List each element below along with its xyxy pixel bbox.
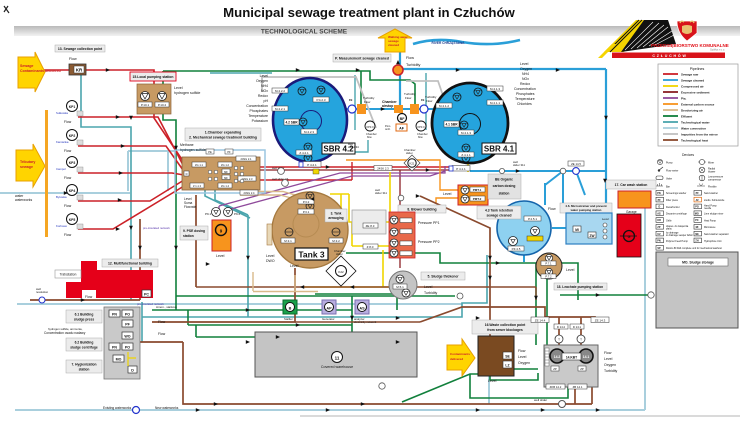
svg-text:MF: MF [224,176,228,180]
svg-text:Oxygen: Oxygen [256,79,268,83]
svg-text:K21: K21 [410,162,415,166]
svg-text:8. Blower building: 8. Blower building [407,208,436,212]
svg-text:pH: pH [264,99,269,103]
svg-text:ZB 14.1: ZB 14.1 [573,385,583,389]
svg-text:Potassium: Potassium [252,119,268,123]
svg-text:Water connection: Water connection [681,127,706,131]
svg-text:PC: PC [144,293,149,297]
svg-text:Lime sludge mixer: Lime sludge mixer [704,213,724,216]
svg-text:Z.4.2.1: Z.4.2.1 [299,151,309,155]
svg-text:AG: AG [657,212,661,215]
svg-text:station: station [499,192,510,196]
svg-text:PO: PO [125,346,130,350]
svg-text:sewage: sewage [20,165,33,169]
svg-text:M.5.1: M.5.1 [396,285,404,289]
svg-text:sludge press: sludge press [74,318,95,322]
svg-text:KP3.0: KP3.0 [366,125,374,129]
svg-text:carbon dosing: carbon dosing [493,184,516,188]
svg-text:Flow: Flow [158,332,166,336]
svg-text:electricity network: electricity network [354,320,377,324]
svg-text:flow: flow [418,135,423,139]
svg-text:M.4.2.1: M.4.2.1 [275,107,285,111]
svg-text:4.1 SBR: 4.1 SBR [445,123,458,127]
svg-text:Concentration osadu nadawy: Concentration osadu nadawy [44,331,86,335]
svg-text:slider: slider [406,151,413,155]
svg-text:sludge centrifuge: sludge centrifuge [70,346,98,350]
svg-text:TECHNOLOGICAL SCHEME: TECHNOLOGICAL SCHEME [261,29,348,36]
svg-text:compressor: compressor [708,179,721,182]
svg-text:ZE 8.3: ZE 8.3 [366,224,375,228]
svg-text:ZE 14.5: ZE 14.5 [571,162,581,166]
svg-text:P 4.2.1: P 4.2.1 [307,163,317,167]
svg-text:Screenings washer: Screenings washer [666,192,687,195]
svg-text:11: 11 [335,356,340,361]
svg-text:Level: Level [174,86,183,90]
svg-text:Level: Level [424,285,433,289]
svg-text:4.2 SBR: 4.2 SBR [285,121,298,125]
svg-text:Microsieve: Microsieve [704,226,716,229]
svg-text:ZH: ZH [695,240,698,243]
svg-text:sewage cleaned: sewage cleaned [486,214,511,218]
svg-text:Contaminants: Contaminants [450,352,470,356]
svg-text:PF: PF [696,192,700,195]
svg-text:T: T [580,338,582,342]
svg-text:ZP: ZP [657,226,660,229]
svg-text:pre-insulated network: pre-insulated network [137,302,164,306]
svg-text:aerauging: aerauging [328,216,343,220]
svg-text:P.3.2: P.3.2 [303,200,310,204]
svg-text:Level: Level [266,254,275,258]
svg-text:M.3.1: M.3.1 [284,239,292,243]
svg-text:KP2: KP2 [69,134,76,138]
svg-text:Level: Level [216,254,225,258]
svg-text:P9.1: P9.1 [205,212,212,216]
svg-text:NE: NE [695,233,699,236]
svg-text:KP3.0: KP3.0 [417,125,425,129]
svg-text:15.Local pumping station: 15.Local pumping station [133,75,174,79]
svg-text:Chlorides: Chlorides [517,102,532,106]
svg-text:AF: AF [696,199,700,202]
svg-text:Stallter: Stallter [284,317,293,321]
svg-text:Devices: Devices [682,153,694,157]
svg-text:ZP: ZP [580,367,584,371]
svg-text:Level: Level [520,62,529,66]
svg-text:Kamianka: Kamianka [56,140,69,144]
svg-text:K22: K22 [338,270,344,274]
svg-text:Turbidity: Turbidity [406,63,421,67]
svg-text:Filter press: Filter press [666,199,679,202]
svg-text:Flow: Flow [406,56,414,60]
svg-text:Sand washer: Sand washer [704,192,718,195]
svg-text:D: D [659,206,661,209]
svg-text:Decarburizer: Decarburizer [666,206,680,209]
svg-text:Pump: Pump [666,162,673,165]
svg-text:M.4.2.3: M.4.2.3 [304,130,314,134]
svg-text:AS: AS [359,307,365,311]
svg-text:Flowrate: Flowrate [184,205,196,209]
svg-text:P.10.1: P.10.1 [141,103,150,107]
svg-text:well slider: well slider [534,398,547,402]
svg-text:G: G [628,235,631,239]
svg-text:Technological heat: Technological heat [681,139,708,143]
svg-text:slider 311: slider 311 [375,191,387,195]
svg-text:station: station [183,234,194,238]
svg-text:Compressed air: Compressed air [681,85,705,89]
svg-text:AF: AF [399,127,405,131]
svg-text:Sewage cleaned: Sewage cleaned [681,79,704,83]
svg-text:Effluent: Effluent [681,115,692,119]
svg-text:M.4.1.3: M.4.1.3 [461,131,471,135]
svg-text:ZG 1.4: ZG 1.4 [221,184,229,188]
svg-text:Oxygen: Oxygen [520,67,532,71]
svg-text:MO: MO [116,358,122,362]
svg-text:New waterworks: New waterworks [155,406,179,410]
svg-text:P. Measurement sewage cleaned: P. Measurement sewage cleaned [335,57,389,61]
svg-text:Concentration: Concentration [514,87,536,91]
svg-text:KR: KR [657,219,661,222]
svg-text:airstop: airstop [382,104,393,108]
svg-text:Level: Level [260,74,269,78]
svg-text:MI: MI [696,226,699,229]
svg-text:Z.4.1.1: Z.4.1.1 [461,153,471,157]
svg-text:Municipal sewage treatment pla: Municipal sewage treatment plant in Człu… [223,5,515,20]
svg-text:KP4: KP4 [69,189,76,193]
svg-text:Covered warehouse: Covered warehouse [321,365,353,369]
svg-text:Oxygen: Oxygen [518,361,530,365]
svg-text:17. Car wash station: 17. Car wash station [615,183,648,187]
svg-text:AP: AP [326,307,332,311]
svg-text:B: B [289,307,292,311]
svg-text:P.7.1: P.7.1 [545,262,552,266]
svg-text:2. Mechanical sewage treatment: 2. Mechanical sewage treatment building [189,136,257,140]
svg-text:Turbidity: Turbidity [604,369,618,373]
svg-text:Bar: Bar [666,186,670,189]
svg-text:MO. Sludge storage: MO. Sludge storage [682,261,714,265]
svg-text:M.4.1.1: M.4.1.1 [490,101,500,105]
svg-text:PMT.2: PMT.2 [473,197,482,201]
svg-text:Level: Level [604,357,613,361]
svg-text:PF: PF [658,199,662,202]
svg-text:delivered: delivered [450,357,463,361]
svg-text:Valve: Valve [666,178,673,181]
svg-text:resolution: resolution [36,290,49,294]
svg-text:LZ: LZ [505,364,509,368]
svg-text:NOx: NOx [261,89,268,93]
svg-text:Flow: Flow [69,57,77,61]
svg-text:slider 311: slider 311 [513,163,525,167]
svg-text:P.7.2: P.7.2 [545,275,552,279]
svg-text:Level: Level [290,264,299,268]
svg-text:Grille: Grille [666,219,672,222]
svg-text:Temperature: Temperature [515,97,535,101]
svg-text:Sulkowka: Sulkowka [56,111,68,115]
svg-text:Oxygen: Oxygen [604,363,616,367]
svg-text:NOx: NOx [522,77,529,81]
svg-text:CZŁUCHÓW: CZŁUCHÓW [652,53,687,58]
svg-text:blower: blower [708,171,716,174]
svg-text:6.1 Building: 6.1 Building [75,313,94,317]
svg-text:Flow: Flow [158,320,166,324]
svg-text:FE: FE [349,98,353,102]
svg-text:Level: Level [518,355,527,359]
svg-text:ZE 14.4: ZE 14.4 [535,319,546,323]
svg-text:Existing waterworks: Existing waterworks [103,406,132,410]
svg-text:Trafostation: Trafostation [60,273,77,277]
svg-text:Decanter centrifuge: Decanter centrifuge [666,213,688,216]
svg-text:DWO: DWO [266,259,275,263]
svg-text:UZ: UZ [657,233,661,236]
svg-text:Spółka z o.o.: Spółka z o.o. [710,48,725,52]
svg-text:waterworks: waterworks [15,198,32,202]
svg-text:PMT.1: PMT.1 [473,188,482,192]
svg-text:Heat Pump: Heat Pump [704,219,717,222]
svg-text:Flow: Flow [364,100,371,104]
svg-text:PN: PN [112,346,117,350]
svg-text:Level: Level [488,379,497,383]
svg-text:to drainage sewper fabric: to drainage sewper fabric [666,234,694,237]
svg-text:KP5: KP5 [69,218,76,222]
svg-text:Flow: Flow [64,233,72,237]
svg-text:4.3 Tank retention: 4.3 Tank retention [485,209,513,213]
svg-text:Flow meter: Flow meter [666,170,679,173]
svg-text:hydrogen sulfide: hydrogen sulfide [174,91,200,95]
svg-text:PN: PN [112,313,117,317]
svg-text:station: station [79,368,90,372]
svg-text:16.Waste collection point: 16.Waste collection point [485,323,526,327]
svg-text:Sand washer separator: Sand washer separator [704,233,729,236]
svg-text:WO: WO [124,335,130,339]
svg-text:MF: MF [224,170,228,174]
svg-text:M.4.1.3: M.4.1.3 [490,87,500,91]
svg-text:7. Hygienization: 7. Hygienization [71,363,96,367]
svg-text:MI: MI [575,228,579,232]
svg-text:Bytowka: Bytowka [56,195,67,199]
svg-text:NH4: NH4 [522,72,529,76]
svg-text:ZKB 14.2: ZKB 14.2 [550,385,562,389]
svg-text:BF: BF [400,117,406,121]
svg-text:Level: Level [443,192,452,196]
svg-text:ZE 14.3: ZE 14.3 [595,319,606,323]
svg-text:Redox: Redox [520,82,530,86]
svg-text:Sewage raw: Sewage raw [681,73,699,77]
svg-text:Flow: Flow [604,351,612,355]
svg-text:Temperature: Temperature [248,114,268,118]
svg-text:ZG 1.2: ZG 1.2 [221,163,229,167]
svg-text:3. Tank: 3. Tank [331,212,342,216]
svg-text:ZP: ZP [553,367,557,371]
svg-text:pre-insulated network: pre-insulated network [143,226,170,230]
svg-text:Flow: Flow [64,204,72,208]
svg-text:D: D [186,172,188,176]
svg-text:slider-34: slider-34 [348,145,359,149]
svg-text:Level: Level [566,268,575,272]
svg-text:needle: needle [704,207,712,210]
svg-text:D: D [131,369,134,373]
svg-text:P9.2: P9.2 [234,212,241,216]
svg-text:D 14.2: D 14.2 [557,325,566,329]
svg-text:24SG 2.1: 24SG 2.1 [241,157,253,161]
svg-text:hydrogen sulfide: hydrogen sulfide [180,148,206,152]
svg-text:13. Sewage collection point: 13. Sewage collection point [58,47,103,51]
svg-text:P.4.5.1: P.4.5.1 [528,217,537,221]
svg-text:14.2: 14.2 [554,355,561,359]
svg-text:NH4: NH4 [261,84,268,88]
svg-text:Methane: Methane [180,143,194,147]
svg-text:Excessive sediment: Excessive sediment [681,91,710,95]
svg-text:6.2 Building: 6.2 Building [75,341,94,345]
svg-text:SBR 4.1: SBR 4.1 [484,145,515,154]
svg-text:P 4.1.1: P 4.1.1 [456,167,466,171]
svg-text:Phosphates: Phosphates [250,109,269,113]
svg-text:from sewer blockages: from sewer blockages [487,328,523,332]
svg-text:Pia.: Pia. [681,97,687,101]
svg-text:M.3.2: M.3.2 [332,239,340,243]
svg-text:BE Organic: BE Organic [495,178,513,182]
svg-text:Sewage: Sewage [20,64,33,68]
svg-text:P.10.2: P.10.2 [158,103,167,107]
svg-text:Flow: Flow [548,207,556,211]
svg-text:Tributary: Tributary [20,160,35,164]
svg-text:ZG 1.1: ZG 1.1 [195,163,203,167]
svg-text:SE: SE [505,355,510,359]
svg-text:PN: PN [657,240,661,243]
svg-text:Flexible: Flexible [708,186,717,189]
svg-text:PC: PC [695,219,699,222]
svg-text:ZW: ZW [590,234,595,238]
svg-text:5. Sludge thickener: 5. Sludge thickener [427,275,459,279]
svg-text:Generator: Generator [322,317,335,321]
svg-text:14.1: 14.1 [583,355,590,359]
svg-text:Technological water: Technological water [681,121,710,125]
svg-text:PO: PO [695,206,699,209]
svg-text:PO: PO [125,313,130,317]
svg-text:slider: slider [336,252,343,256]
svg-text:PZ.4.5: PZ.4.5 [512,247,521,251]
svg-text:PE: PE [208,150,212,154]
svg-text:MO: MO [695,212,699,215]
svg-text:KP3: KP3 [69,161,76,165]
svg-text:Deodorizing air: Deodorizing air [681,109,704,113]
svg-text:onzł.: onzł. [385,127,391,131]
svg-text:Flow: Flow [405,96,412,100]
svg-text:plany: plany [666,227,673,230]
svg-text:Hydrophore Unit: Hydrophore Unit [704,240,722,243]
svg-text:Flow: Flow [64,149,72,153]
svg-text:PRZEDSIĘBIORSTWO KOMUNALNE: PRZEDSIĘBIORSTWO KOMUNALNE [651,43,729,48]
svg-text:Impurities from the mirror: Impurities from the mirror [681,133,719,137]
svg-text:Z 1.1 2: Z 1.1 2 [193,184,202,188]
svg-text:water pumping station: water pumping station [570,208,602,212]
svg-text:M.4.2.2: M.4.2.2 [275,89,285,93]
svg-text:Tank 3: Tank 3 [298,250,325,260]
svg-text:Phosphates: Phosphates [516,92,535,96]
svg-text:Pipelines: Pipelines [690,67,705,71]
svg-text:External carbon source: External carbon source [681,103,715,107]
svg-text:Rotom.80 Roll complete unit fo: Rotom.80 Roll complete unit for mechanic… [666,247,722,250]
svg-text:Turbidity: Turbidity [424,291,438,295]
svg-text:14.KBT: 14.KBT [566,356,577,360]
svg-text:PF: PF [227,150,231,154]
svg-text:9. PSE dosing: 9. PSE dosing [183,229,205,233]
svg-text:Flow: Flow [64,176,72,180]
svg-text:12. Multifunctional building: 12. Multifunctional building [108,262,152,266]
svg-text:Concentration: Concentration [246,104,268,108]
svg-text:18. Leachate pumping station: 18. Leachate pumping station [557,285,603,289]
svg-text:D 14.1: D 14.1 [573,325,582,329]
svg-text:Mixer: Mixer [708,162,714,165]
svg-text:Flow: Flow [518,349,526,353]
svg-text:KP1: KP1 [69,105,76,109]
svg-text:P.3.1: P.3.1 [303,210,310,214]
svg-text:studio. Kohlenstofe: studio. Kohlenstofe [704,199,725,202]
svg-text:Flow: Flow [426,99,433,103]
svg-text:Polymer Feed Pump: Polymer Feed Pump [666,240,688,243]
svg-text:Pressure PP1: Pressure PP1 [418,221,440,225]
svg-text:flow: flow [367,135,372,139]
svg-text:M.4.1.2: M.4.1.2 [439,104,449,108]
svg-text:PF: PF [125,323,130,327]
svg-text:PN: PN [657,192,661,195]
svg-text:Korbowo: Korbowo [56,224,67,228]
svg-text:Contaminants delivered: Contaminants delivered [20,69,61,73]
svg-text:Z 8.0: Z 8.0 [367,245,374,249]
svg-text:T: T [558,338,560,342]
svg-text:SP: SP [657,247,661,250]
svg-text:24SK 2.3: 24SK 2.3 [377,167,389,171]
svg-text:Level: Level [602,217,609,221]
svg-text:cleaned: cleaned [388,43,399,47]
svg-text:1.Chamber expanding: 1.Chamber expanding [205,131,242,135]
svg-text:Campol: Campol [56,167,66,171]
svg-text:Flow: Flow [64,120,72,124]
svg-text:KR: KR [76,68,83,73]
svg-text:Garage: Garage [626,210,637,214]
svg-text:24SG 2.4: 24SG 2.4 [244,191,256,195]
svg-text:P.4.2.3: P.4.2.3 [316,98,325,102]
svg-text:RIVER CHRZĄSTAWA: RIVER CHRZĄSTAWA [432,41,466,45]
svg-text:Pressure PP2: Pressure PP2 [418,240,440,244]
svg-text:Flow: Flow [85,295,93,299]
svg-text:Redox: Redox [258,94,268,98]
